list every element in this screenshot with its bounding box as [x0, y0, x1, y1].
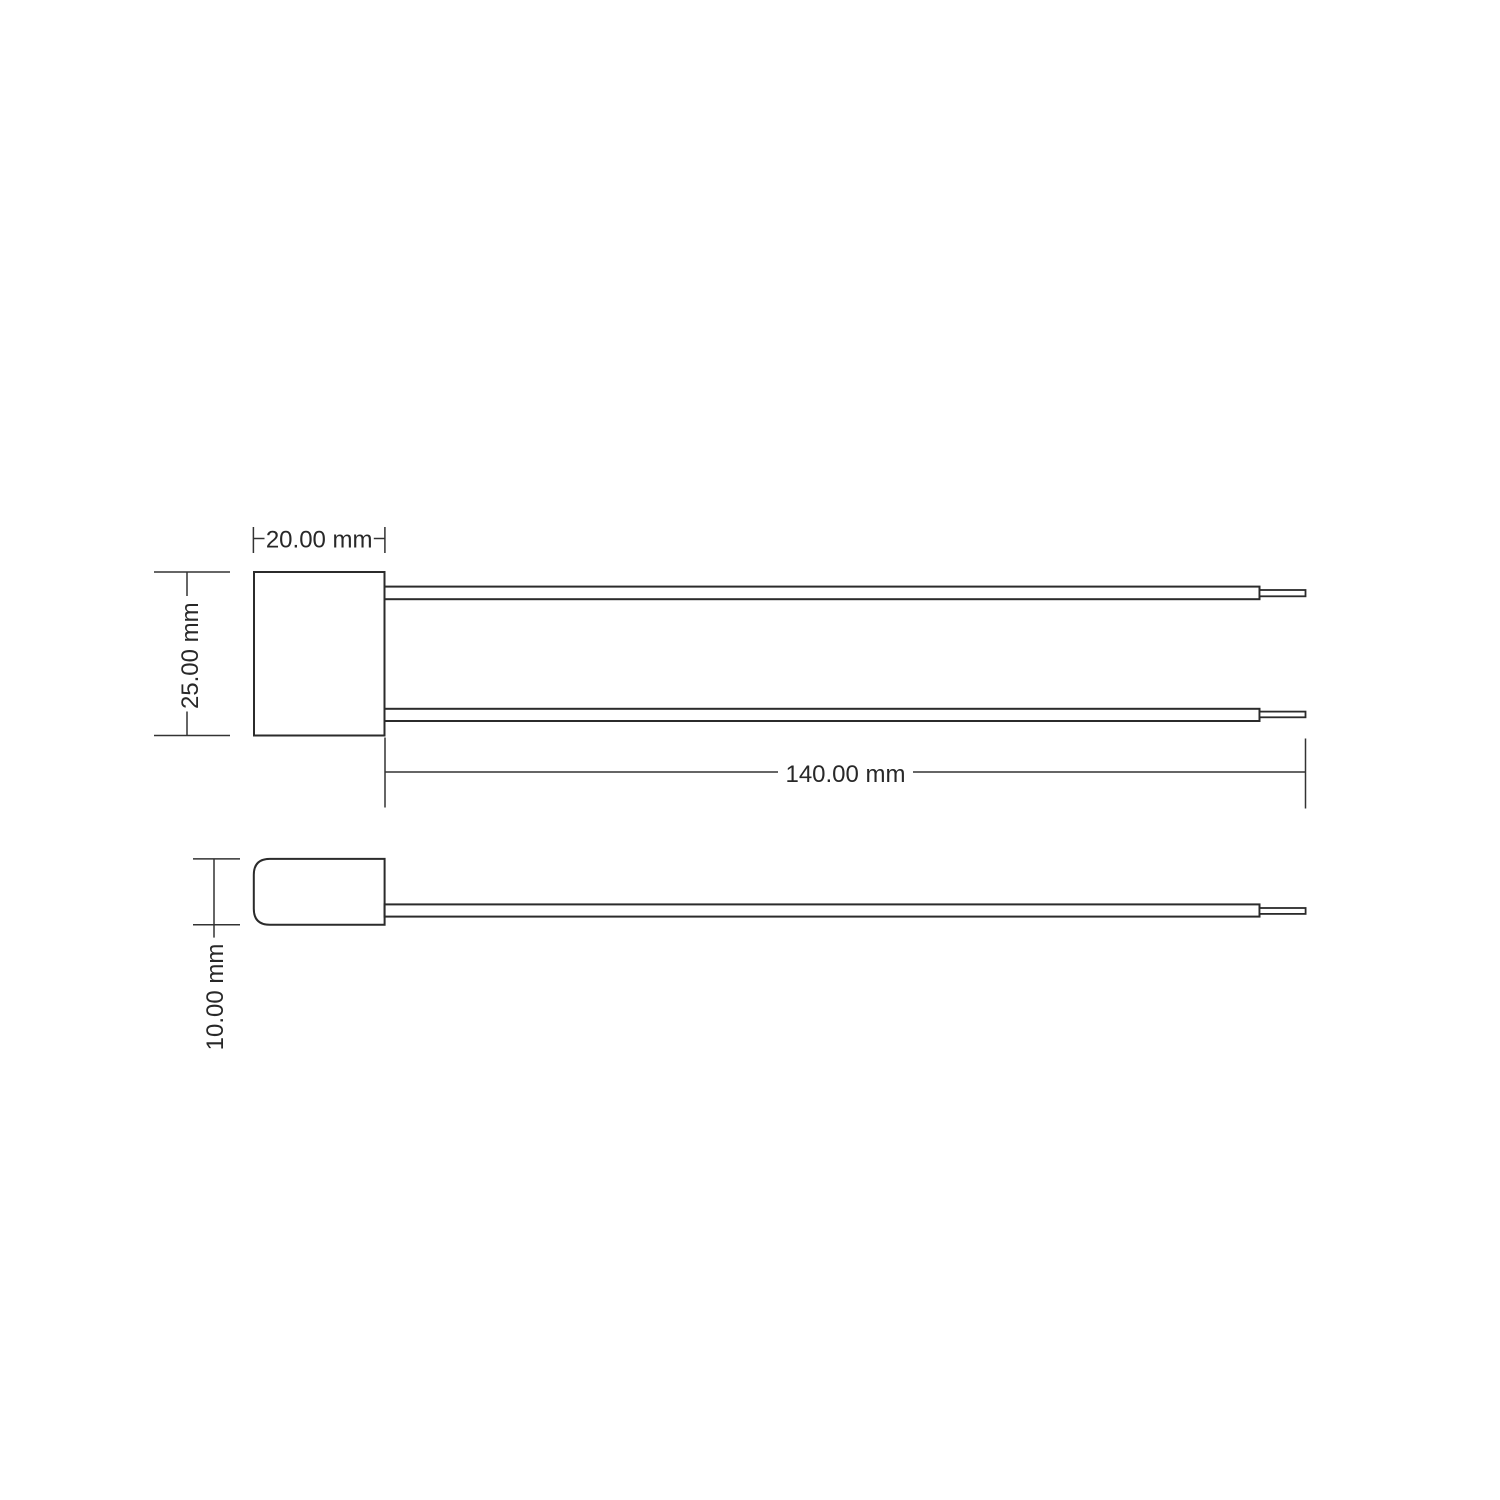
svg-text:140.00 mm: 140.00 mm [785, 761, 905, 788]
svg-text:20.00 mm: 20.00 mm [266, 526, 373, 553]
svg-text:10.00 mm: 10.00 mm [202, 944, 229, 1051]
svg-text:25.00 mm: 25.00 mm [177, 602, 204, 709]
